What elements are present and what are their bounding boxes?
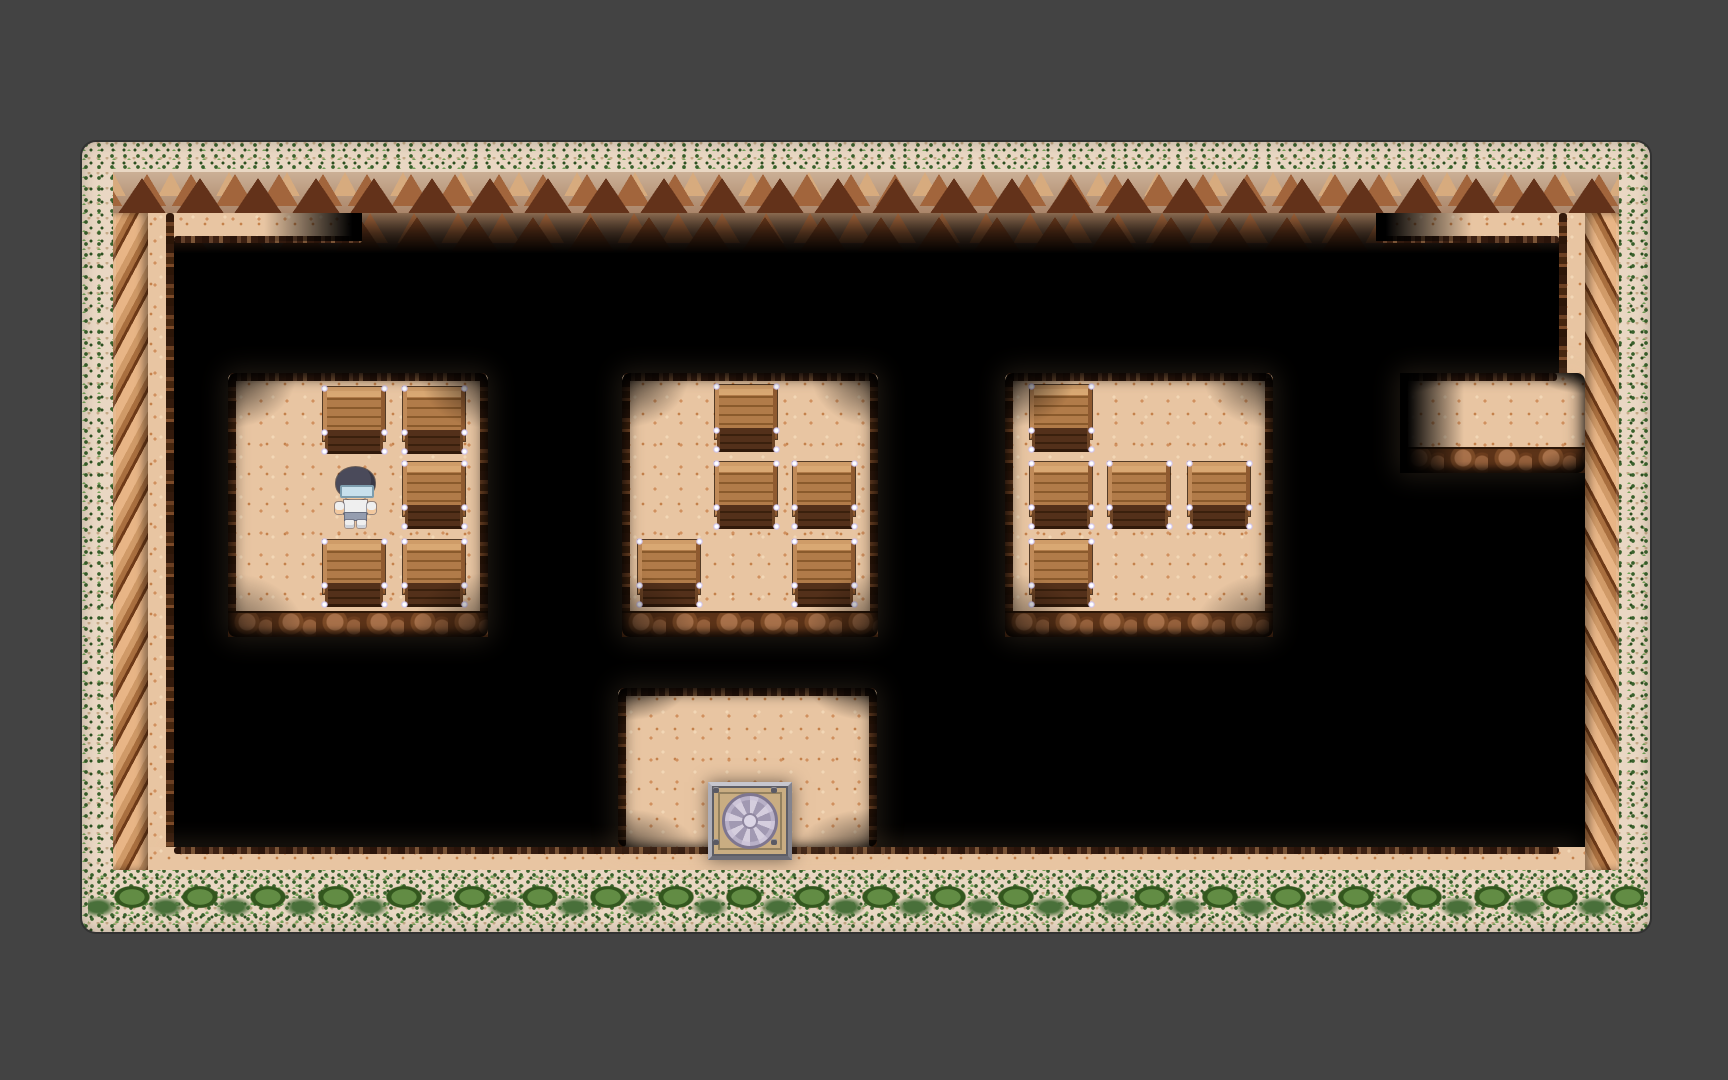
corner-sparkle-icon xyxy=(1106,460,1113,467)
corner-sparkle-icon xyxy=(381,385,388,392)
player-leg-left xyxy=(345,520,354,528)
alcove-east xyxy=(1400,373,1585,473)
crate[interactable] xyxy=(793,540,855,607)
corner-sparkle-icon xyxy=(1028,460,1035,467)
corner-sparkle-icon xyxy=(1166,504,1173,511)
crate[interactable] xyxy=(1030,385,1092,452)
corner-sparkle-icon xyxy=(1028,427,1035,434)
east-wall-path xyxy=(1559,213,1585,385)
corner-sparkle-icon xyxy=(1088,601,1095,608)
room-top-edge xyxy=(1402,373,1557,381)
rope-edge xyxy=(166,213,174,870)
player-arm-left xyxy=(335,502,344,514)
room-top-edge xyxy=(620,688,875,696)
corner-sparkle-icon xyxy=(791,582,798,589)
corner-sparkle-icon xyxy=(636,601,643,608)
corner-sparkle-icon xyxy=(1028,538,1035,545)
corner-sparkle-icon xyxy=(713,460,720,467)
corner-sparkle-icon xyxy=(1028,523,1035,530)
cliff-overhang-shadow xyxy=(148,213,1585,257)
corner-sparkle-icon xyxy=(851,504,858,511)
corner-sparkle-icon xyxy=(401,429,408,436)
rock-ledge xyxy=(622,611,878,637)
crate[interactable] xyxy=(715,462,777,529)
corner-sparkle-icon xyxy=(381,601,388,608)
path-edge-bottom xyxy=(174,236,362,243)
log-wall-right xyxy=(1585,213,1619,870)
crate-front-face xyxy=(1190,505,1248,529)
corner-sparkle-icon xyxy=(381,582,388,589)
path-edge-bottom xyxy=(1376,236,1559,243)
corner-sparkle-icon xyxy=(1246,523,1253,530)
corner-sparkle-icon xyxy=(321,538,328,545)
crate-front-face xyxy=(325,583,383,607)
crate-front-face xyxy=(405,583,463,607)
corner-sparkle-icon xyxy=(713,523,720,530)
corner-sparkle-icon xyxy=(461,504,468,511)
rope-edge xyxy=(1559,213,1567,385)
crate-front-face xyxy=(405,430,463,454)
corner-sparkle-icon xyxy=(696,601,703,608)
crate-front-face xyxy=(1110,505,1168,529)
cliff-wall-top xyxy=(113,172,1619,216)
cave-interior xyxy=(148,213,1585,870)
corner-sparkle-icon xyxy=(636,582,643,589)
map-border-ivy xyxy=(82,142,1650,932)
rope-edge xyxy=(869,693,877,847)
corner-sparkle-icon xyxy=(713,504,720,511)
corner-sparkle-icon xyxy=(851,582,858,589)
top-path-east xyxy=(1376,213,1585,241)
corner-sparkle-icon xyxy=(773,504,780,511)
crate[interactable] xyxy=(1030,462,1092,529)
corner-sparkle-icon xyxy=(1106,504,1113,511)
corner-sparkle-icon xyxy=(321,448,328,455)
corner-sparkle-icon xyxy=(1028,601,1035,608)
crate[interactable] xyxy=(638,540,700,607)
corner-sparkle-icon xyxy=(696,538,703,545)
crate[interactable] xyxy=(715,385,777,452)
room-top-edge xyxy=(1007,373,1271,381)
corner-sparkle-icon xyxy=(401,538,408,545)
room-top-edge xyxy=(230,373,486,381)
corner-sparkle-icon xyxy=(851,523,858,530)
corner-sparkle-icon xyxy=(1106,523,1113,530)
corner-sparkle-icon xyxy=(461,582,468,589)
rope-edge xyxy=(870,378,878,617)
corner-sparkle-icon xyxy=(401,460,408,467)
corner-sparkle-icon xyxy=(791,460,798,467)
crate[interactable] xyxy=(1030,540,1092,607)
corner-sparkle-icon xyxy=(381,538,388,545)
vault-bolt xyxy=(771,839,777,845)
vault-chest[interactable] xyxy=(708,782,792,860)
crate-front-face xyxy=(325,430,383,454)
rope-edge xyxy=(618,693,626,847)
corner-sparkle-icon xyxy=(1166,460,1173,467)
rock-ledge xyxy=(1400,447,1585,473)
corner-sparkle-icon xyxy=(401,523,408,530)
corner-sparkle-icon xyxy=(1088,383,1095,390)
corner-sparkle-icon xyxy=(773,383,780,390)
bottom-path xyxy=(148,847,1585,870)
crate-front-face xyxy=(795,505,853,529)
crate[interactable] xyxy=(403,387,465,454)
player-arm-right xyxy=(367,502,376,514)
corner-sparkle-icon xyxy=(401,448,408,455)
corner-sparkle-icon xyxy=(461,460,468,467)
corner-sparkle-icon xyxy=(401,385,408,392)
corner-sparkle-icon xyxy=(1166,523,1173,530)
rock-ledge xyxy=(1005,611,1273,637)
corner-sparkle-icon xyxy=(1246,460,1253,467)
top-path-west xyxy=(148,213,362,241)
corner-sparkle-icon xyxy=(791,538,798,545)
corner-sparkle-icon xyxy=(461,429,468,436)
crate-front-face xyxy=(717,428,775,452)
rope-edge xyxy=(1005,378,1013,617)
corner-sparkle-icon xyxy=(773,460,780,467)
corner-sparkle-icon xyxy=(381,429,388,436)
corner-sparkle-icon xyxy=(773,523,780,530)
vault-rosette-hub xyxy=(744,815,756,827)
corner-sparkle-icon xyxy=(461,523,468,530)
corner-sparkle-icon xyxy=(791,504,798,511)
log-wall-left xyxy=(113,213,148,870)
corner-sparkle-icon xyxy=(1088,427,1095,434)
corner-sparkle-icon xyxy=(461,538,468,545)
crate-front-face xyxy=(717,505,775,529)
corner-sparkle-icon xyxy=(1028,504,1035,511)
corner-sparkle-icon xyxy=(773,427,780,434)
crate-front-face xyxy=(1032,505,1090,529)
corner-sparkle-icon xyxy=(381,448,388,455)
corner-sparkle-icon xyxy=(1186,504,1193,511)
corner-sparkle-icon xyxy=(696,582,703,589)
corner-sparkle-icon xyxy=(1028,446,1035,453)
crate[interactable] xyxy=(323,540,385,607)
corner-sparkle-icon xyxy=(1088,504,1095,511)
corner-sparkle-icon xyxy=(851,460,858,467)
rock-ledge xyxy=(228,611,488,637)
vault-bolt xyxy=(713,787,719,793)
crate[interactable] xyxy=(403,540,465,607)
rope-edge xyxy=(1400,378,1408,453)
corner-sparkle-icon xyxy=(321,429,328,436)
corner-sparkle-icon xyxy=(1088,460,1095,467)
corner-sparkle-icon xyxy=(1186,460,1193,467)
corner-sparkle-icon xyxy=(791,523,798,530)
corner-sparkle-icon xyxy=(851,601,858,608)
corner-sparkle-icon xyxy=(791,601,798,608)
rope-edge xyxy=(622,378,630,617)
corner-sparkle-icon xyxy=(773,446,780,453)
player-leg-right xyxy=(357,520,366,528)
corner-sparkle-icon xyxy=(321,385,328,392)
corner-sparkle-icon xyxy=(321,582,328,589)
vault-bolt xyxy=(771,787,777,793)
corner-sparkle-icon xyxy=(401,601,408,608)
crate[interactable] xyxy=(403,462,465,529)
corner-sparkle-icon xyxy=(321,601,328,608)
corner-sparkle-icon xyxy=(1088,523,1095,530)
room-top-edge xyxy=(624,373,876,381)
corner-sparkle-icon xyxy=(713,383,720,390)
player-character[interactable] xyxy=(333,467,378,528)
corner-sparkle-icon xyxy=(461,385,468,392)
corner-sparkle-icon xyxy=(461,601,468,608)
rope-edge xyxy=(1265,378,1273,617)
corner-sparkle-icon xyxy=(1028,582,1035,589)
corner-sparkle-icon xyxy=(401,504,408,511)
corner-sparkle-icon xyxy=(1246,504,1253,511)
crate-front-face xyxy=(405,505,463,529)
player-glasses-icon xyxy=(340,485,374,498)
corner-sparkle-icon xyxy=(1186,523,1193,530)
crate[interactable] xyxy=(323,387,385,454)
corner-sparkle-icon xyxy=(1088,538,1095,545)
corner-sparkle-icon xyxy=(713,427,720,434)
corner-sparkle-icon xyxy=(1088,446,1095,453)
rope-edge xyxy=(480,378,488,617)
crate[interactable] xyxy=(1108,462,1170,529)
crate[interactable] xyxy=(793,462,855,529)
corner-sparkle-icon xyxy=(1088,582,1095,589)
vault-bolt xyxy=(713,839,719,845)
crate-front-face xyxy=(1032,583,1090,607)
rope-edge xyxy=(228,378,236,617)
corner-sparkle-icon xyxy=(636,538,643,545)
ivy-border-bottom xyxy=(88,872,1644,928)
path-edge-top xyxy=(174,847,1559,854)
west-wall-path xyxy=(148,213,174,870)
crate[interactable] xyxy=(1188,462,1250,529)
corner-sparkle-icon xyxy=(401,582,408,589)
corner-sparkle-icon xyxy=(461,448,468,455)
game-viewport xyxy=(0,0,1728,1080)
corner-sparkle-icon xyxy=(851,538,858,545)
crate-front-face xyxy=(795,583,853,607)
crate-front-face xyxy=(640,583,698,607)
corner-sparkle-icon xyxy=(1028,383,1035,390)
crate-front-face xyxy=(1032,428,1090,452)
corner-sparkle-icon xyxy=(713,446,720,453)
